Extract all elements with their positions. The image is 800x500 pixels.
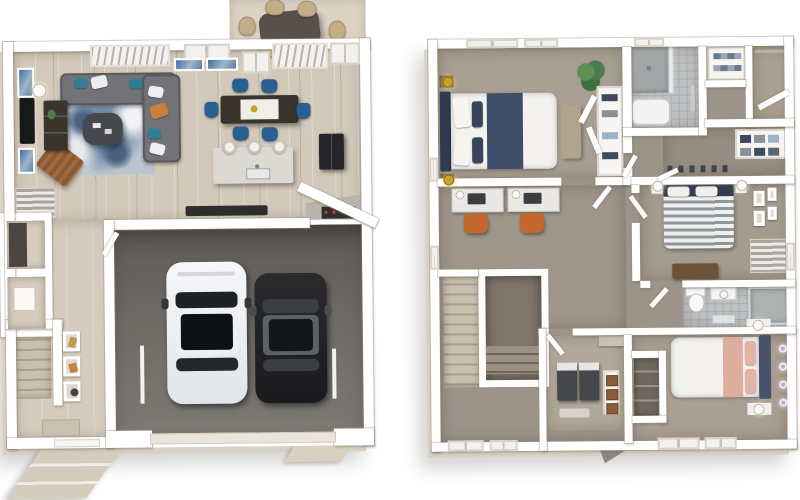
dryer-top: [579, 362, 599, 370]
window: [490, 440, 518, 451]
bed1-headboard: [440, 92, 452, 172]
wall: [682, 280, 795, 288]
desk-lamp: [511, 190, 520, 199]
bathtub: [631, 98, 671, 126]
bed1-pillow: [452, 97, 471, 129]
washer: [557, 362, 577, 400]
wall-sconce: [779, 381, 787, 389]
wall: [432, 440, 797, 452]
wall: [539, 329, 547, 451]
dresser: [672, 263, 718, 278]
foot-bench: [561, 104, 581, 158]
gold-lamp: [443, 175, 454, 186]
wall: [745, 46, 753, 127]
stairwell-treads: [486, 346, 542, 374]
toilet-bowl: [688, 293, 704, 312]
wall: [438, 269, 478, 276]
bed1-pillow-navy: [472, 137, 483, 163]
bed3-blush-runner: [723, 337, 744, 397]
window: [448, 440, 484, 451]
closet-shelves: [735, 129, 791, 159]
wall: [622, 47, 632, 153]
folded-clothes: [602, 152, 618, 159]
staircase-down: [443, 275, 480, 387]
bed3-pillow: [745, 341, 756, 365]
folded-towels: [713, 53, 741, 59]
task-chair-orange: [520, 213, 544, 233]
dryer: [579, 362, 599, 400]
vanity-sink: [710, 287, 736, 300]
clothes-stack: [768, 135, 779, 143]
shower-glass: [669, 47, 672, 93]
wall: [631, 185, 639, 193]
window: [705, 437, 737, 449]
sink-basin: [719, 290, 728, 299]
lamp: [652, 181, 663, 192]
folded-towels: [713, 65, 741, 71]
basket: [606, 403, 618, 414]
bed3-headboard: [759, 335, 772, 399]
wall: [659, 351, 667, 423]
wall: [632, 223, 641, 281]
bed1-pillow: [453, 135, 471, 166]
desk-lamp: [455, 190, 464, 199]
wall: [705, 119, 794, 128]
gold-lamp: [442, 77, 453, 88]
wall-art: [754, 211, 765, 226]
towel-bar: [691, 85, 695, 111]
bed3-pillow: [745, 369, 756, 393]
wall-sconce: [779, 363, 787, 371]
render-shadow-wedge: [600, 449, 628, 463]
wall-art: [767, 188, 776, 201]
laptop: [524, 193, 542, 204]
wardrobe-shelving: [597, 86, 624, 176]
second-floor-plan: [0, 0, 800, 500]
folded-clothes: [602, 94, 618, 101]
lamp: [753, 320, 764, 331]
clothes-stack: [754, 135, 765, 143]
window: [430, 246, 439, 270]
bed1-navy-runner: [487, 93, 524, 169]
upper-shelf: [599, 336, 627, 346]
clothes-stack: [754, 148, 765, 156]
wall-art: [768, 207, 777, 220]
window: [786, 243, 795, 271]
laundry-rug: [559, 408, 589, 417]
slatted-window-unit: [750, 239, 790, 273]
bed2-striped-duvet: [664, 196, 734, 249]
window: [466, 39, 518, 48]
bed2-pillow: [695, 186, 717, 196]
clothes-stack: [740, 135, 751, 143]
basket: [606, 389, 618, 400]
clothes-stack: [768, 148, 779, 156]
shower-drain: [646, 66, 651, 71]
laptop: [468, 193, 486, 204]
lamp: [736, 180, 747, 191]
wall-art: [753, 191, 764, 206]
linen-shelves: [707, 46, 745, 80]
clothes-stack: [740, 148, 751, 156]
wall: [632, 416, 666, 423]
window: [524, 39, 558, 48]
window: [658, 437, 700, 449]
bath-mat: [713, 315, 735, 323]
wall-sconce: [779, 345, 787, 353]
wall-sconce: [779, 399, 787, 407]
washer-top: [557, 362, 577, 370]
shoe-closet: [634, 358, 661, 416]
lamp: [753, 404, 764, 415]
wall: [706, 80, 746, 87]
task-chair-orange: [464, 213, 488, 233]
window: [634, 38, 664, 47]
wall: [437, 178, 561, 187]
wall: [640, 281, 650, 288]
bed2-pillow: [667, 186, 689, 196]
basket: [606, 375, 618, 386]
bed1-pillow-navy: [472, 101, 483, 127]
folded-clothes: [602, 132, 618, 139]
wall: [623, 127, 705, 136]
folded-clothes: [602, 110, 618, 117]
basket-shelf: [603, 370, 619, 414]
window: [429, 158, 438, 182]
floor-plan-image: [0, 0, 800, 500]
closet-rod: [755, 50, 787, 53]
